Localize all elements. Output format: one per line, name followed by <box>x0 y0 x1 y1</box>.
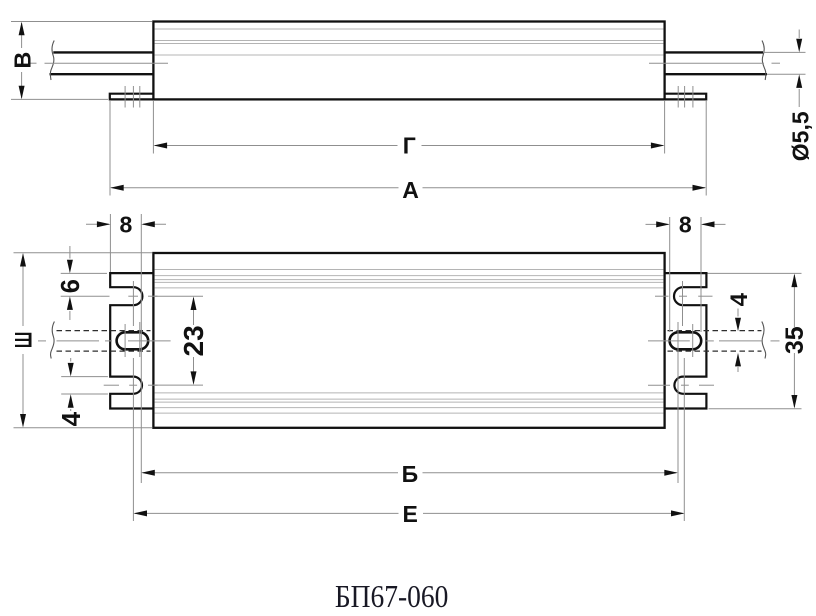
svg-text:В: В <box>9 52 35 69</box>
svg-text:4: 4 <box>56 411 86 426</box>
svg-text:8: 8 <box>120 212 133 238</box>
svg-text:23: 23 <box>178 325 209 356</box>
svg-text:Е: Е <box>403 501 418 527</box>
svg-text:4: 4 <box>726 292 753 306</box>
svg-text:Ø5,5: Ø5,5 <box>788 111 814 161</box>
svg-text:Б: Б <box>402 461 419 487</box>
svg-text:6: 6 <box>57 279 85 293</box>
svg-text:8: 8 <box>679 212 692 238</box>
svg-text:35: 35 <box>781 326 809 354</box>
svg-text:Ш: Ш <box>11 332 38 349</box>
svg-text:БП67-060: БП67-060 <box>335 578 449 614</box>
svg-text:Г: Г <box>403 133 416 159</box>
svg-text:А: А <box>402 177 419 203</box>
